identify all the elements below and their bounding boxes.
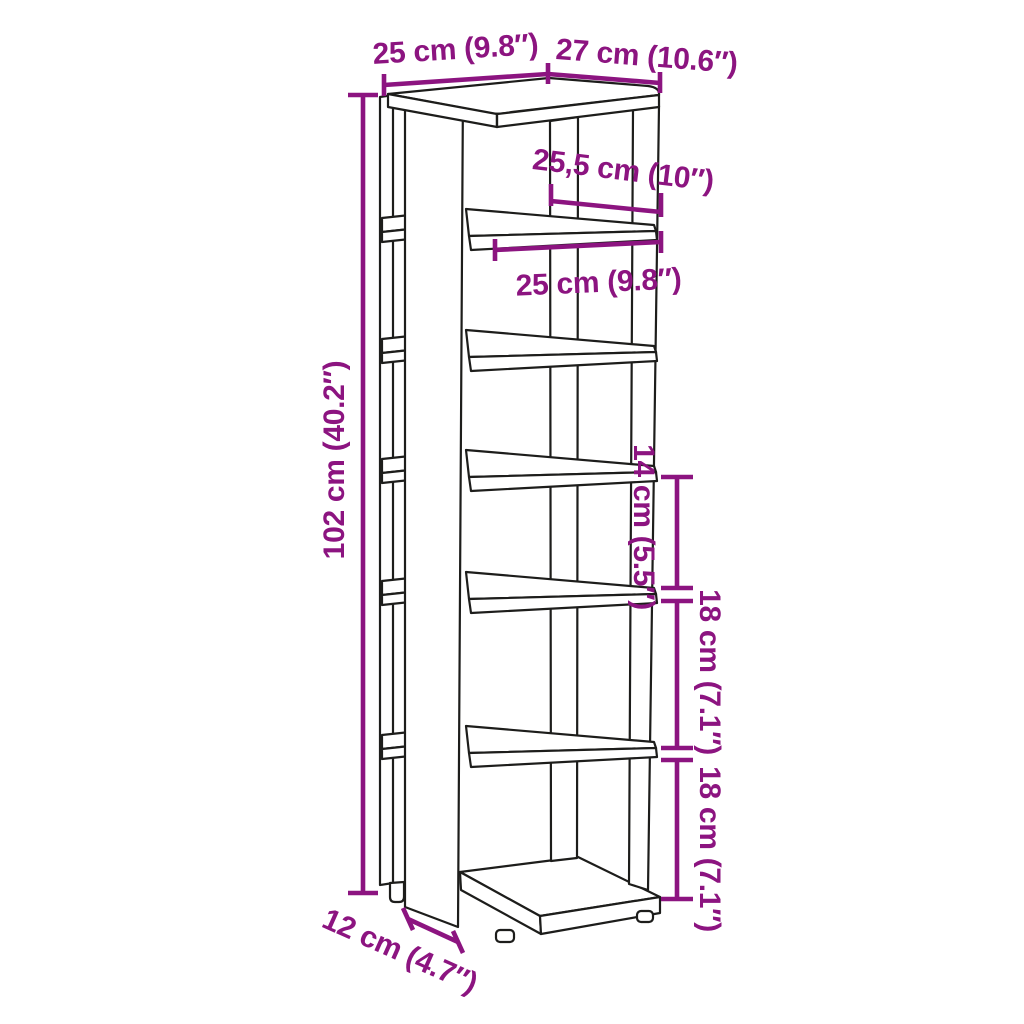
dim-total-height-label: 102 cm (40.2″): [318, 361, 351, 560]
dim-total-height: 102 cm (40.2″): [318, 95, 378, 893]
back-left-foot: [390, 882, 404, 902]
dim-gap-middle-label: 14 cm (5.5″): [627, 444, 660, 610]
base-foot-front: [496, 930, 514, 942]
base-foot-right: [637, 911, 653, 922]
dim-gap-middle: 14 cm (5.5″): [627, 444, 693, 610]
shoe-rack-diagram-canvas: 25 cm (9.8″) 27 cm (10.6″) 25,5 cm (10″)…: [0, 0, 1024, 1024]
front-left-side-board: [405, 87, 463, 927]
dim-gap-lower-label: 18 cm (7.1″): [693, 589, 726, 755]
furniture-dimension-diagram: 25 cm (9.8″) 27 cm (10.6″) 25,5 cm (10″)…: [0, 0, 1024, 1024]
dim-gap-lower: 18 cm (7.1″): [661, 589, 726, 755]
dim-top-depth-label: 27 cm (10.6″): [555, 33, 739, 80]
dim-gap-bottom-label: 18 cm (7.1″): [693, 766, 726, 932]
dim-top-width-label: 25 cm (9.8″): [372, 28, 540, 71]
dim-gap-bottom: 18 cm (7.1″): [661, 760, 726, 932]
